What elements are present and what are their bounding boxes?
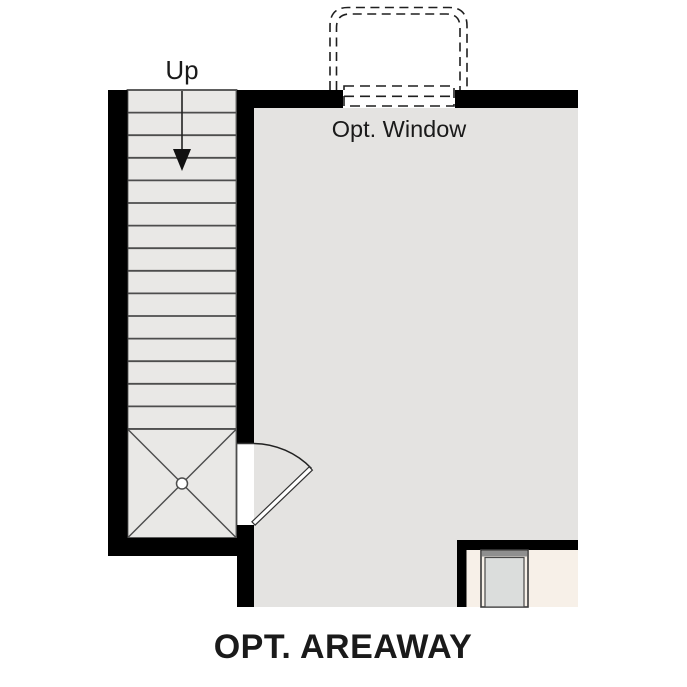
exterior-door	[481, 550, 528, 607]
lower-right-wall-vertical	[457, 540, 467, 607]
lower-right-wall-horizontal	[457, 540, 578, 550]
stair-right-wall-lower	[237, 525, 254, 607]
stair-landing-x	[128, 429, 237, 538]
exterior-door-header	[482, 551, 527, 557]
left-wall	[108, 90, 128, 556]
top-wall-left-segment	[237, 90, 343, 108]
opt-window	[343, 84, 455, 108]
staircase	[128, 90, 237, 538]
areaway-outer-dashed-line	[330, 8, 467, 91]
opt-window-label: Opt. Window	[332, 116, 468, 142]
room-floor	[254, 108, 578, 607]
stair-right-wall-upper	[237, 90, 254, 443]
floor-plan: Up Opt. Window OPT. AREAWAY	[0, 0, 687, 687]
landing-center-post	[177, 478, 188, 489]
top-wall-right-segment	[455, 90, 578, 108]
plan-title: OPT. AREAWAY	[214, 628, 473, 666]
adjacent-room	[467, 550, 579, 607]
areaway-dashed-outline	[330, 8, 467, 91]
up-label: Up	[165, 55, 198, 85]
areaway-inner-dashed-line	[337, 14, 461, 90]
exterior-door-panel	[485, 558, 524, 608]
stair-bottom-wall	[108, 538, 254, 556]
